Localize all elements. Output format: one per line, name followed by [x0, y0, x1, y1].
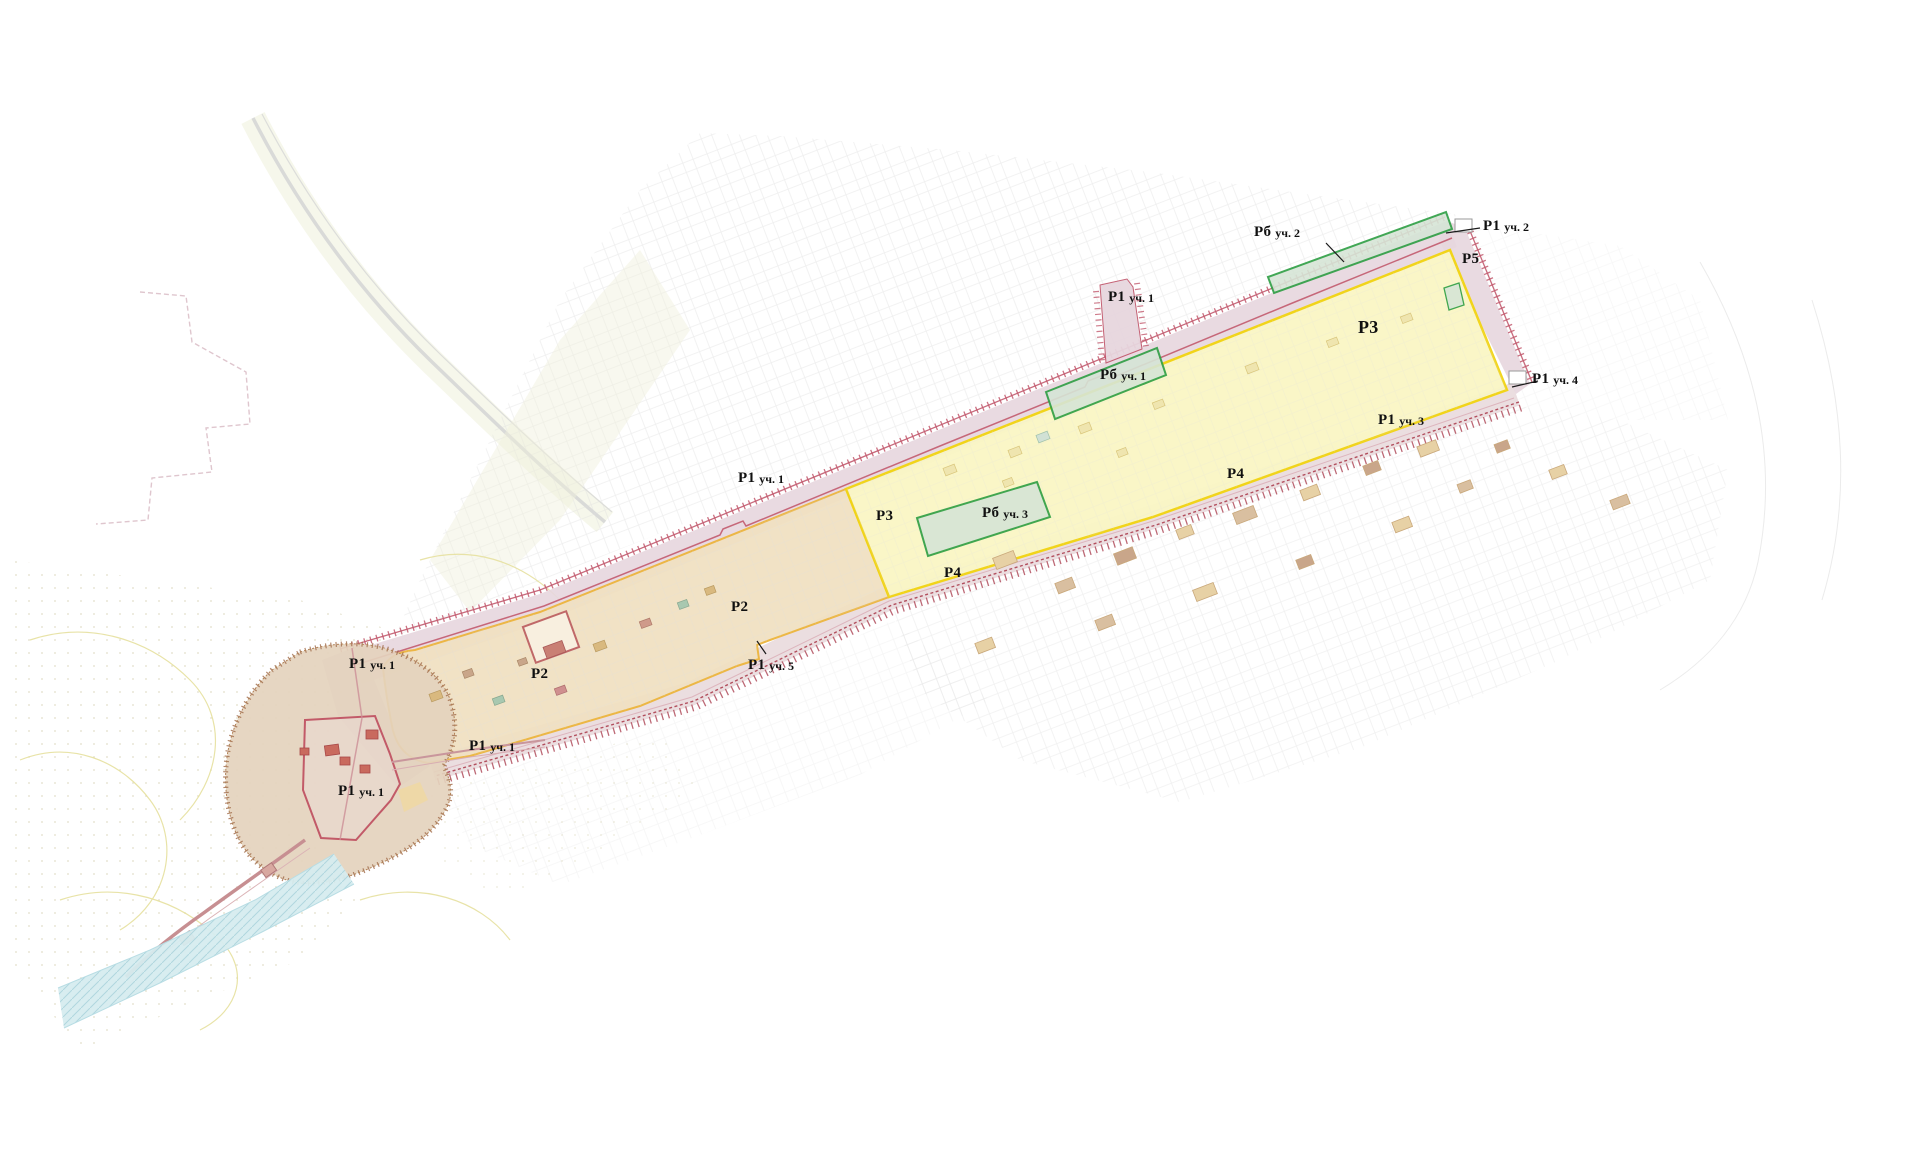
callout-box-r1-4 — [1509, 371, 1526, 384]
zone-label-r4-east: Р4 — [1227, 466, 1248, 482]
zone-label-r1-1-fortress: Р1уч. 1 — [338, 783, 384, 799]
boundary-zigzag — [96, 292, 250, 524]
zone-label-r3-main: Р3 — [1358, 318, 1383, 337]
zone-label-r6-3: Рбуч. 3 — [982, 505, 1028, 521]
zone-label-r1-1-mid: Р1уч. 1 — [738, 470, 784, 486]
zone-label-r1-1-west: Р1уч. 1 — [349, 656, 395, 672]
zone-label-r2-east: Р2 — [731, 599, 752, 615]
zone-label-r3-west: Р3 — [876, 508, 897, 524]
zone-label-r1-2: Р1уч. 2 — [1483, 218, 1529, 234]
zone-label-r6-2: Рбуч. 2 — [1254, 224, 1300, 240]
zone-label-r1-1-corridor: Р1уч. 1 — [469, 738, 515, 754]
zone-label-r1-1-top: Р1уч. 1 — [1108, 289, 1154, 305]
zone-label-r1-4: Р1уч. 4 — [1532, 371, 1578, 387]
zone-label-r4-mid: Р4 — [944, 565, 965, 581]
zone-label-r6-1: Рбуч. 1 — [1100, 367, 1146, 383]
map-canvas: Рбуч. 2 Р1уч. 2 Р5 Р1уч. 1 Р3 Рбуч. 1 Р1… — [0, 0, 1920, 1152]
zone-label-r1-3: Р1уч. 3 — [1378, 412, 1424, 428]
zone-label-r2-west: Р2 — [531, 666, 552, 682]
zone-label-r5: Р5 — [1462, 251, 1483, 267]
zone-label-r1-5: Р1уч. 5 — [748, 657, 794, 673]
